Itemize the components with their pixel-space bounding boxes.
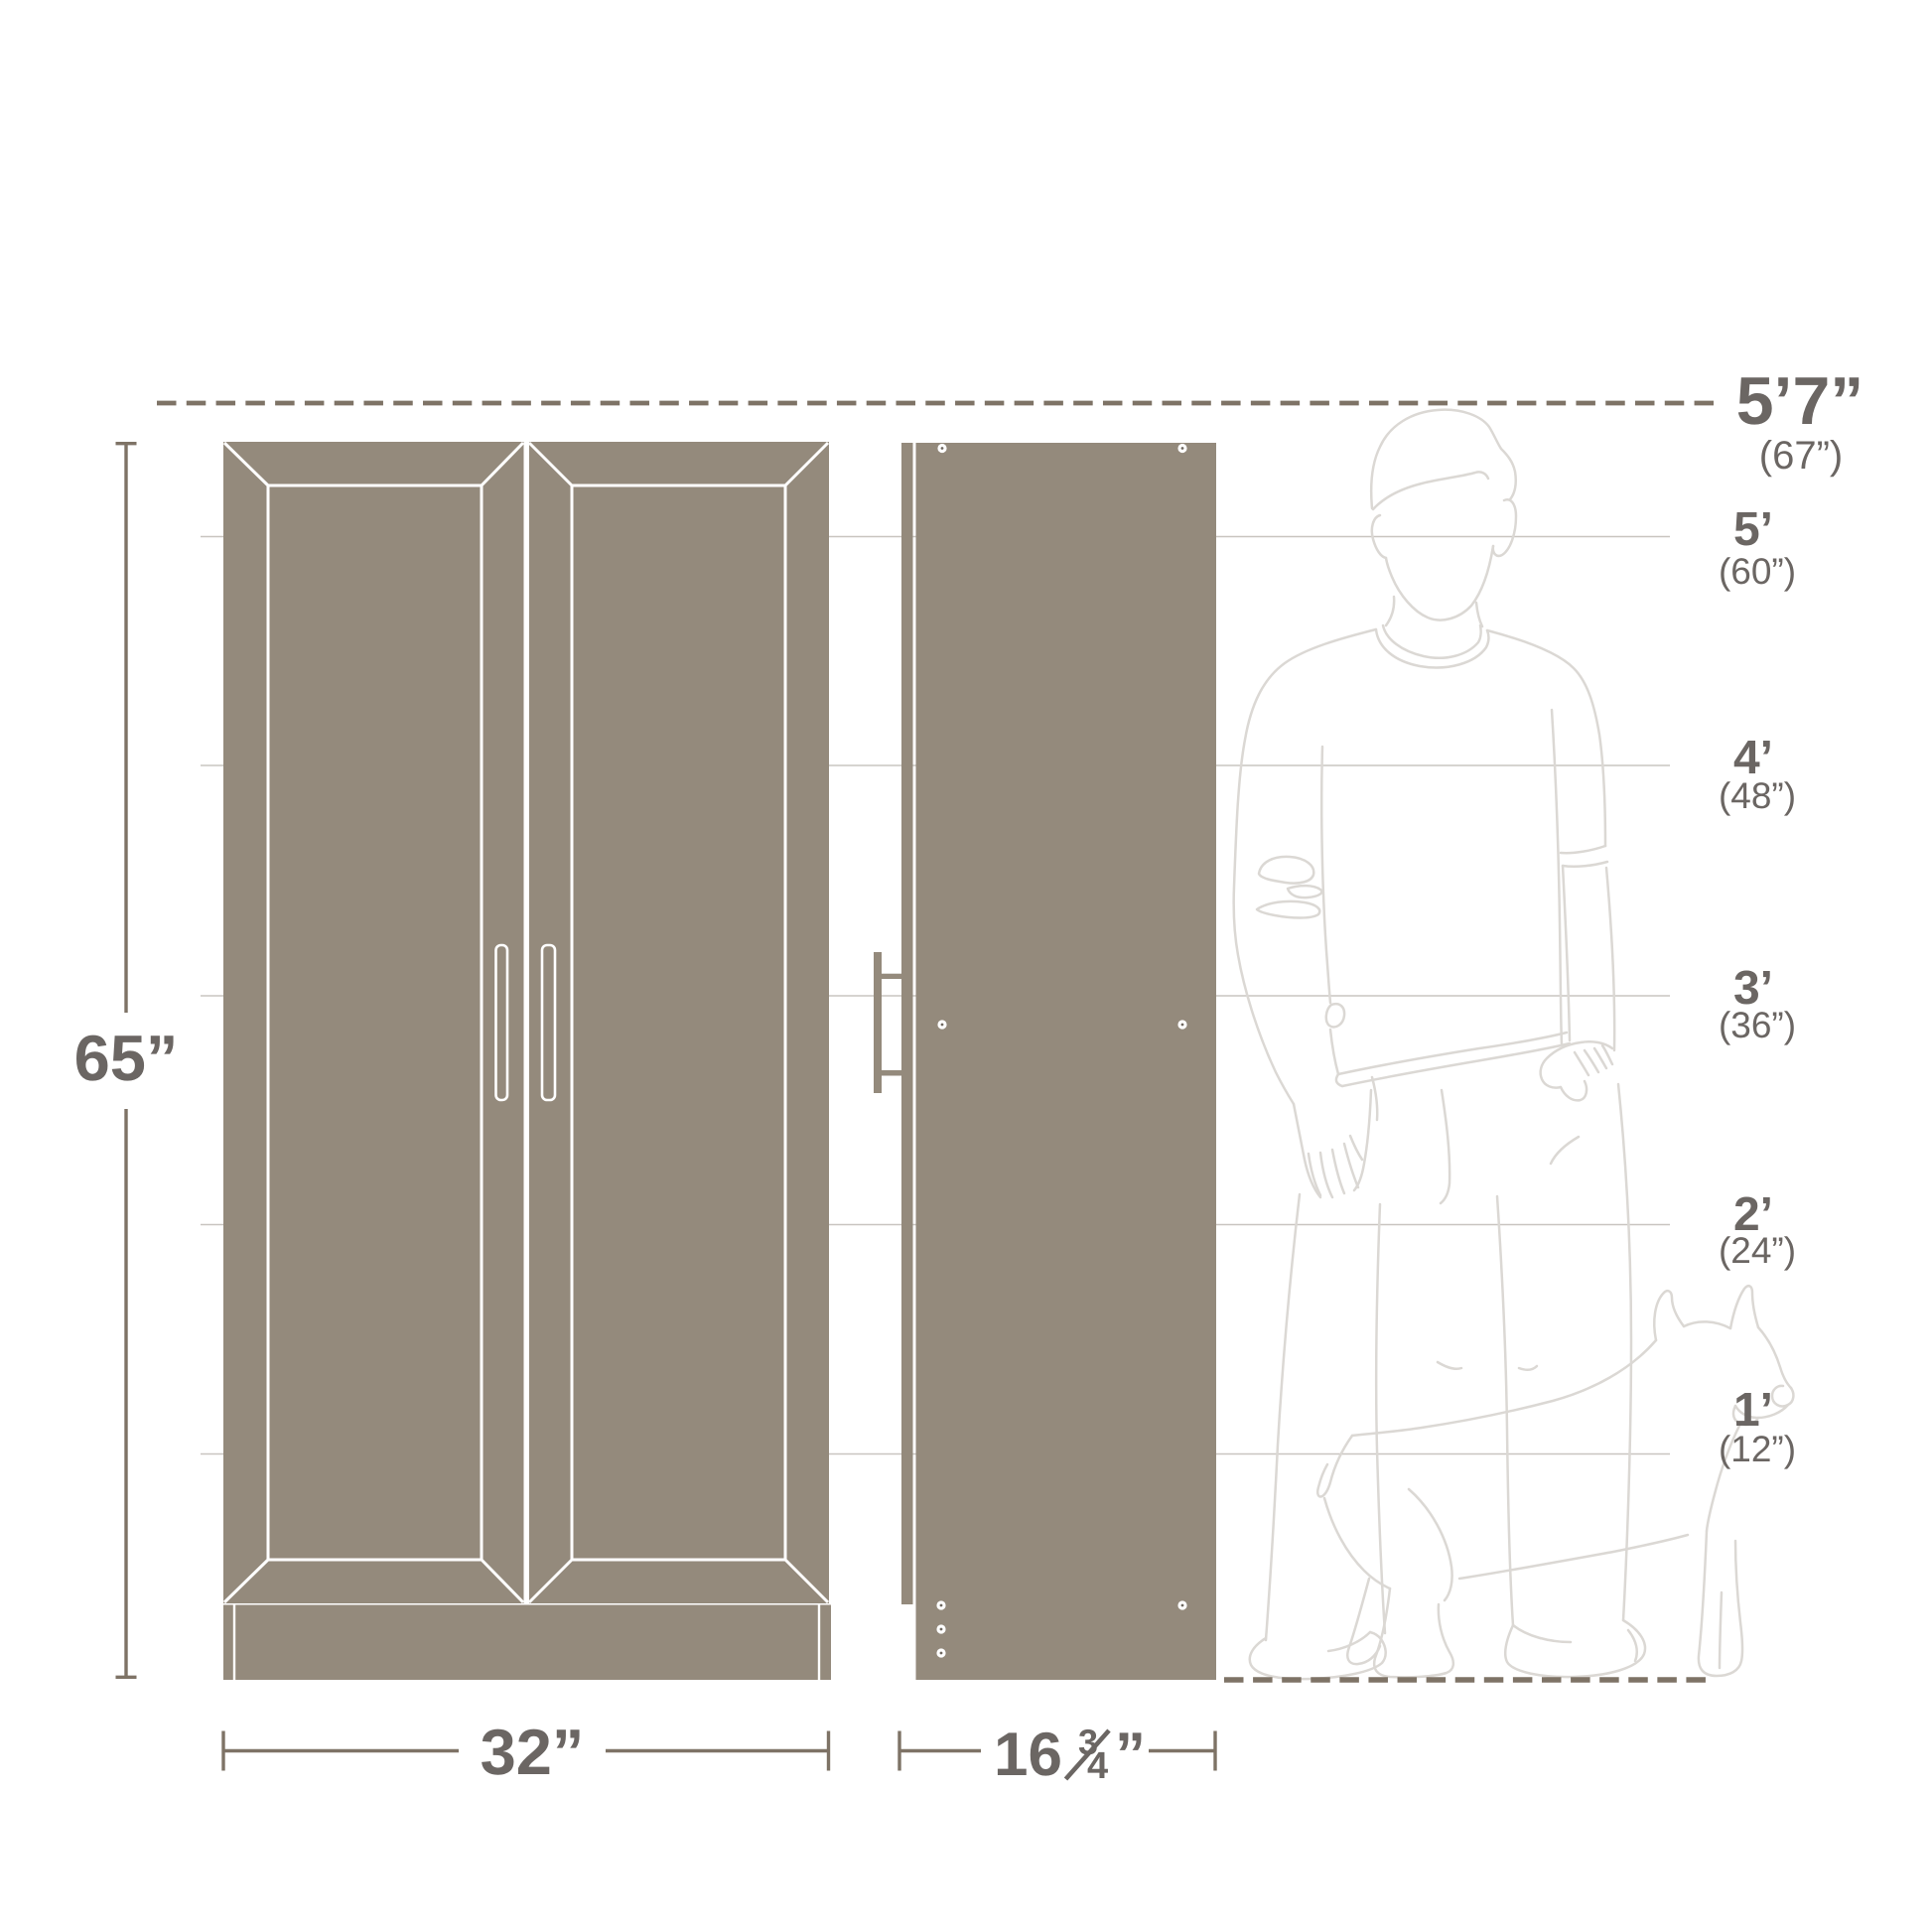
svg-text:(12”): (12”) <box>1719 1429 1796 1469</box>
svg-text:(67”): (67”) <box>1759 434 1843 478</box>
svg-text:5’: 5’ <box>1733 503 1773 556</box>
svg-text:(48”): (48”) <box>1719 775 1796 816</box>
svg-text:(36”): (36”) <box>1719 1005 1796 1045</box>
svg-text:5’7”: 5’7” <box>1736 363 1864 439</box>
svg-text:(24”): (24”) <box>1719 1230 1796 1271</box>
svg-text:65”: 65” <box>74 1022 179 1094</box>
svg-text:”: ” <box>1115 1721 1146 1789</box>
svg-text:4: 4 <box>1087 1745 1108 1787</box>
svg-text:32”: 32” <box>481 1716 585 1788</box>
svg-text:(60”): (60”) <box>1719 551 1796 592</box>
svg-text:16: 16 <box>994 1721 1062 1789</box>
